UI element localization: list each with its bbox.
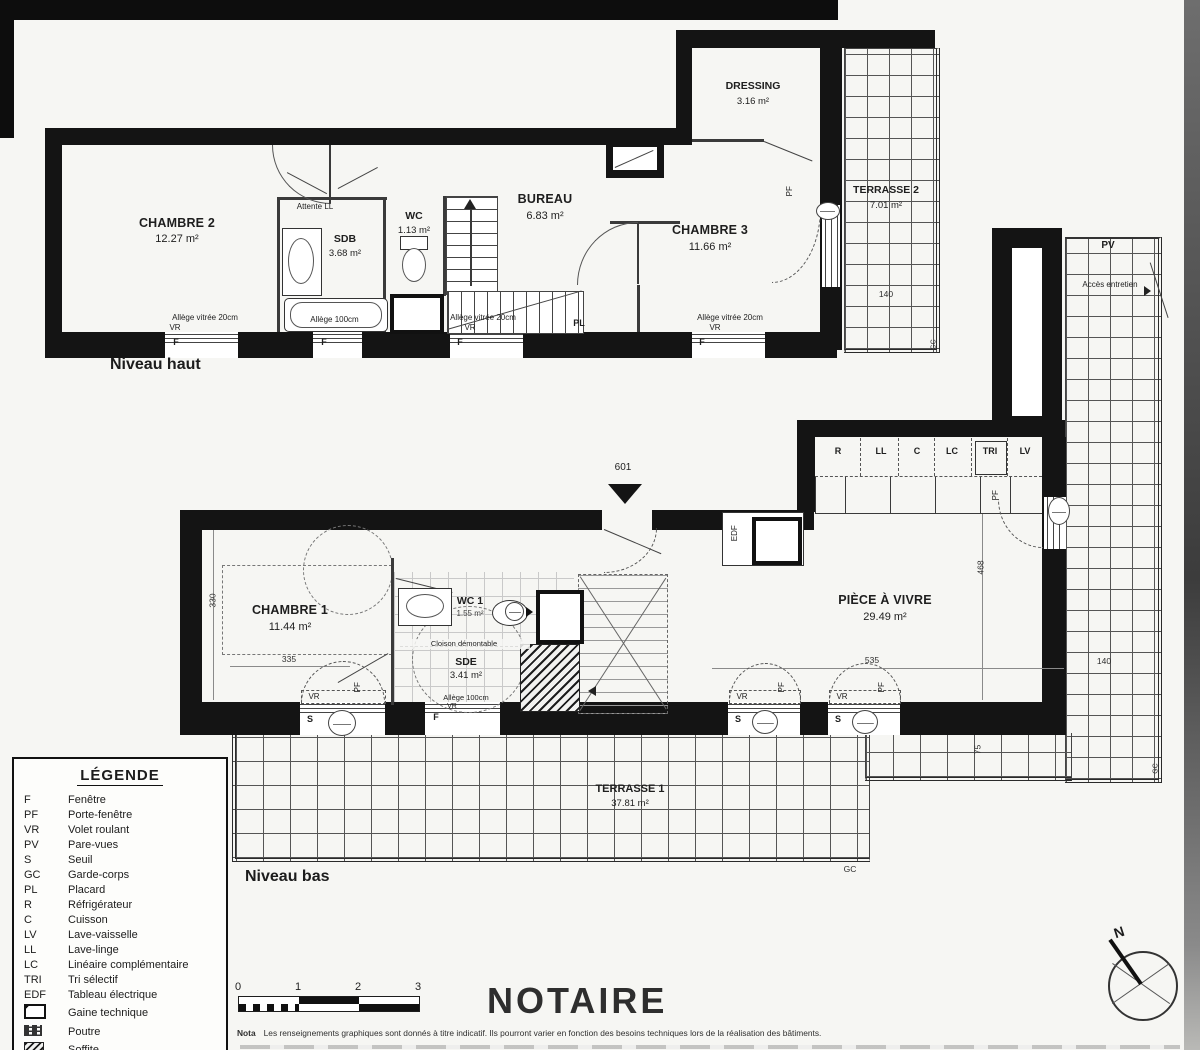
soffite-icon xyxy=(24,1042,68,1050)
legend-code: TRI xyxy=(24,974,68,988)
legend-code: F xyxy=(24,794,68,808)
legend-row: LLLave-linge xyxy=(14,942,226,957)
seuil-marker: S xyxy=(831,714,845,726)
room-name: TERRASSE 2 xyxy=(838,184,934,198)
dimension-140: 140 xyxy=(868,289,904,300)
door-leaf xyxy=(338,167,378,189)
room-area: 11.44 m² xyxy=(215,620,365,634)
legend-label: Pare-vues xyxy=(68,839,118,853)
legend-code: R xyxy=(24,899,68,913)
scale-tick: 2 xyxy=(351,980,365,994)
sink-basin xyxy=(406,594,444,618)
scale-tick: 1 xyxy=(291,980,305,994)
room-name: CHAMBRE 2 xyxy=(102,215,252,231)
legend-code: PV xyxy=(24,839,68,853)
fenetre-marker: F xyxy=(429,712,443,724)
room-area: 3.16 m² xyxy=(678,96,828,108)
garde-corps-marker: GC xyxy=(929,335,938,355)
legend-code: LL xyxy=(24,944,68,958)
window-size-stamp xyxy=(1048,497,1070,525)
legend-code: VR xyxy=(24,824,68,838)
legend-title-wrap: LÉGENDE xyxy=(14,767,226,786)
counter-divider xyxy=(980,477,981,513)
attente-ll-label: Attente LL xyxy=(280,202,350,212)
legend-code: C xyxy=(24,914,68,928)
legend-label: Volet roulant xyxy=(68,824,129,838)
photo-edge-right xyxy=(1184,0,1200,1050)
wall-segment xyxy=(391,558,394,705)
wall-segment xyxy=(180,510,202,735)
floor-plan-canvas: CHAMBRE 2 12.27 m² Attente LL SDB 3.68 m… xyxy=(0,0,1200,1050)
room-name: WC xyxy=(385,210,443,224)
north-label: N xyxy=(1104,920,1134,943)
room-name: SDE xyxy=(436,656,496,670)
room-name: BUREAU xyxy=(470,191,620,207)
legend-label: Fenêtre xyxy=(68,794,106,808)
legend-code: LC xyxy=(24,959,68,973)
door-arc xyxy=(998,499,1043,548)
acces-entretien-label: Accès entretien xyxy=(1078,280,1142,290)
legend-title: LÉGENDE xyxy=(77,767,163,786)
fenetre-marker: F xyxy=(452,337,468,349)
legend-row: PFPorte-fenêtre xyxy=(14,807,226,822)
volet-roulant-label: VR xyxy=(700,323,730,333)
legend-label: Tableau électrique xyxy=(68,989,157,1003)
kitchen-unit-label: R xyxy=(826,446,850,458)
gaine-box xyxy=(752,517,802,565)
legend-code: LV xyxy=(24,929,68,943)
legend-code: GC xyxy=(24,869,68,883)
legend-label: Placard xyxy=(68,884,105,898)
room-area: 11.66 m² xyxy=(635,240,785,254)
kitchen-divider xyxy=(898,438,899,476)
legend-row: VRVolet roulant xyxy=(14,822,226,837)
legend-label: Soffite xyxy=(68,1044,99,1050)
room-name: CHAMBRE 1 xyxy=(215,602,365,618)
wall-segment xyxy=(45,128,691,145)
stamp-circle xyxy=(505,602,524,621)
gaine-box xyxy=(536,590,584,644)
legend-code: PL xyxy=(24,884,68,898)
volet-roulant-label: VR xyxy=(731,692,753,702)
level-title: Niveau haut xyxy=(110,356,201,374)
placard-marker: PL xyxy=(568,318,590,330)
porte-fenetre-marker: PF xyxy=(991,485,1001,505)
cropped-text-line xyxy=(240,1045,1180,1049)
legend-label: Linéaire complémentaire xyxy=(68,959,188,973)
volet-roulant-label: VR xyxy=(455,323,485,333)
plan-title: NOTAIRE xyxy=(487,980,667,1022)
counter-divider xyxy=(935,477,936,513)
scale-tick: 3 xyxy=(411,980,425,994)
kitchen-counter-line xyxy=(815,476,1042,477)
door-arc xyxy=(577,222,638,285)
toilet-arrow xyxy=(526,607,533,617)
garde-corps-marker: GC xyxy=(1151,759,1160,779)
legend-box: LÉGENDE FFenêtre PFPorte-fenêtre VRVolet… xyxy=(12,757,228,1050)
photo-edge-left xyxy=(0,20,14,138)
toilet-bowl xyxy=(402,248,426,282)
volet-roulant-label: VR xyxy=(831,692,853,702)
legend-label: Garde-corps xyxy=(68,869,129,883)
porte-fenetre-marker: PF xyxy=(877,677,887,697)
kitchen-unit-label: LV xyxy=(1013,446,1037,458)
kitchen-divider xyxy=(934,438,935,476)
room-area: 7.01 m² xyxy=(838,200,934,212)
legend-label: Réfrigérateur xyxy=(68,899,132,913)
kitchen-unit-label: TRI xyxy=(978,446,1002,458)
seuil-marker: S xyxy=(731,714,745,726)
volet-roulant-label: VR xyxy=(303,692,325,702)
legend-code: S xyxy=(24,854,68,868)
room-area: 3.41 m² xyxy=(436,670,496,682)
legend-row: CCuisson xyxy=(14,912,226,927)
porte-fenetre-marker: PF xyxy=(353,677,363,697)
window-size-stamp xyxy=(328,710,356,736)
legend-label: Lave-vaisselle xyxy=(68,929,138,943)
dimension-335: 335 xyxy=(272,654,306,665)
fenetre-marker: F xyxy=(168,337,184,349)
nota-body: Les renseignements graphiques sont donné… xyxy=(264,1028,822,1038)
legend-row: FFenêtre xyxy=(14,792,226,807)
scale-bar xyxy=(238,996,420,1012)
room-area: 1.55 m² xyxy=(442,609,498,619)
room-area: 12.27 m² xyxy=(102,232,252,246)
allege-label: Allège vitrée 20cm xyxy=(675,313,785,323)
room-area: 3.68 m² xyxy=(305,248,385,260)
legend-label: Cuisson xyxy=(68,914,108,928)
scale-tick: 0 xyxy=(231,980,245,994)
allege-label: Allège 100cm xyxy=(292,315,377,325)
edf-marker: EDF xyxy=(730,520,740,546)
fenetre-marker: F xyxy=(316,337,332,349)
allege-label: Allège vitrée 20cm xyxy=(150,313,260,323)
stair-direction-arrow xyxy=(588,686,596,696)
nota-label: Nota xyxy=(237,1028,256,1038)
entry-arrow-icon xyxy=(608,484,642,504)
room-name: TERRASSE 1 xyxy=(545,782,715,796)
nota-text: NotaLes renseignements graphiques sont d… xyxy=(237,1028,1167,1038)
wall-segment xyxy=(1042,437,1066,735)
room-name: DRESSING xyxy=(678,80,828,94)
dimension-468: 468 xyxy=(975,553,986,583)
legend-label: Lave-linge xyxy=(68,944,119,958)
legend-row: PLPlacard xyxy=(14,882,226,897)
dimension-75: 75 xyxy=(972,738,983,762)
legend-row: LCLinéaire complémentaire xyxy=(14,957,226,972)
wall-segment xyxy=(637,285,640,332)
dimension-line xyxy=(982,514,983,700)
counter-divider xyxy=(845,477,846,513)
legend-row: GCGarde-corps xyxy=(14,867,226,882)
door-arc xyxy=(604,528,657,573)
kitchen-divider xyxy=(971,438,972,476)
wall-segment xyxy=(45,128,62,358)
room-area: 1.13 m² xyxy=(385,225,443,237)
legend-label: Porte-fenêtre xyxy=(68,809,132,823)
room-name: WC 1 xyxy=(446,595,494,609)
walkway-decking xyxy=(1065,237,1162,783)
kitchen-divider xyxy=(1007,438,1008,476)
wall-segment xyxy=(277,197,387,200)
level-title: Niveau bas xyxy=(245,868,329,886)
legend-row: Poutre xyxy=(14,1023,226,1040)
kitchen-unit-label: LL xyxy=(869,446,893,458)
garde-corps-marker: GC xyxy=(838,864,862,875)
door-arc xyxy=(272,145,331,204)
legend-label: Seuil xyxy=(68,854,92,868)
room-area: 37.81 m² xyxy=(545,798,715,810)
counter-divider xyxy=(890,477,891,513)
wall-segment xyxy=(797,420,1065,437)
door-leaf xyxy=(764,141,813,162)
allege-label: Allège vitrée 20cm xyxy=(428,313,538,323)
shaft-opening xyxy=(1012,248,1042,416)
terrasse1-decking xyxy=(865,733,1072,781)
volet-roulant-label: VR xyxy=(440,702,464,711)
room-area: 29.49 m² xyxy=(800,610,970,624)
legend-row: EDFTableau électrique xyxy=(14,987,226,1002)
room-name: PIÈCE À VIVRE xyxy=(800,592,970,608)
counter-edge xyxy=(815,477,816,513)
kitchen-divider xyxy=(860,438,861,476)
acces-arrow-icon xyxy=(1144,286,1151,296)
room-name: CHAMBRE 3 xyxy=(635,222,785,238)
porte-fenetre-marker: PF xyxy=(785,181,795,201)
porte-fenetre-marker: PF xyxy=(777,677,787,697)
legend-row: Gaine technique xyxy=(14,1002,226,1023)
legend-row: SSeuil xyxy=(14,852,226,867)
legend-label: Tri sélectif xyxy=(68,974,118,988)
photo-edge-top xyxy=(0,0,838,20)
wall-segment xyxy=(180,510,602,530)
kitchen-unit-label: LC xyxy=(940,446,964,458)
legend-label: Poutre xyxy=(68,1026,100,1040)
wall-segment xyxy=(692,139,764,142)
room-name: SDB xyxy=(305,233,385,247)
seuil-marker: S xyxy=(303,714,317,726)
legend-row: LVLave-vaisselle xyxy=(14,927,226,942)
wall-segment xyxy=(277,198,280,332)
window-size-stamp xyxy=(816,202,840,220)
legend-row: PVPare-vues xyxy=(14,837,226,852)
window-size-stamp xyxy=(752,710,778,734)
window-size-stamp xyxy=(852,710,878,734)
poutre-icon xyxy=(24,1025,68,1041)
fenetre-marker: F xyxy=(694,337,710,349)
legend-row: Soffite xyxy=(14,1040,226,1050)
scale-segment xyxy=(239,1004,299,1011)
legend-code: EDF xyxy=(24,989,68,1003)
scale-segment xyxy=(359,1004,419,1011)
wall-segment xyxy=(676,30,935,48)
pare-vues-marker: PV xyxy=(1088,239,1128,252)
soffite-hatch xyxy=(520,644,580,712)
legend-label: Gaine technique xyxy=(68,1007,148,1021)
legend-row: RRéfrigérateur xyxy=(14,897,226,912)
dimension-140: 140 xyxy=(1086,656,1122,667)
kitchen-unit-label: C xyxy=(905,446,929,458)
scale-segment xyxy=(299,997,359,1004)
gaine-technique-icon xyxy=(24,1004,68,1024)
legend-row: TRITri sélectif xyxy=(14,972,226,987)
volet-roulant-label: VR xyxy=(160,323,190,333)
cloison-label: Cloison démontable xyxy=(398,639,530,649)
dimension-535: 535 xyxy=(852,655,892,666)
unit-number: 601 xyxy=(606,461,640,474)
legend-code: PF xyxy=(24,809,68,823)
room-area: 6.83 m² xyxy=(470,209,620,223)
